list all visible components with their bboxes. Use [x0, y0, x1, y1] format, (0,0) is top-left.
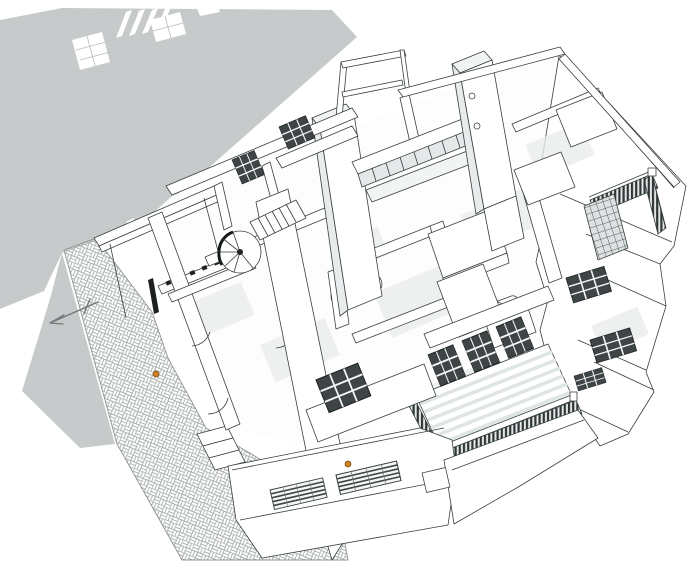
orange-marker — [345, 461, 351, 467]
axonometric-house-rendering — [0, 0, 700, 570]
orange-marker — [153, 371, 159, 377]
spiral-stair — [219, 231, 261, 273]
house-svg — [0, 0, 700, 570]
